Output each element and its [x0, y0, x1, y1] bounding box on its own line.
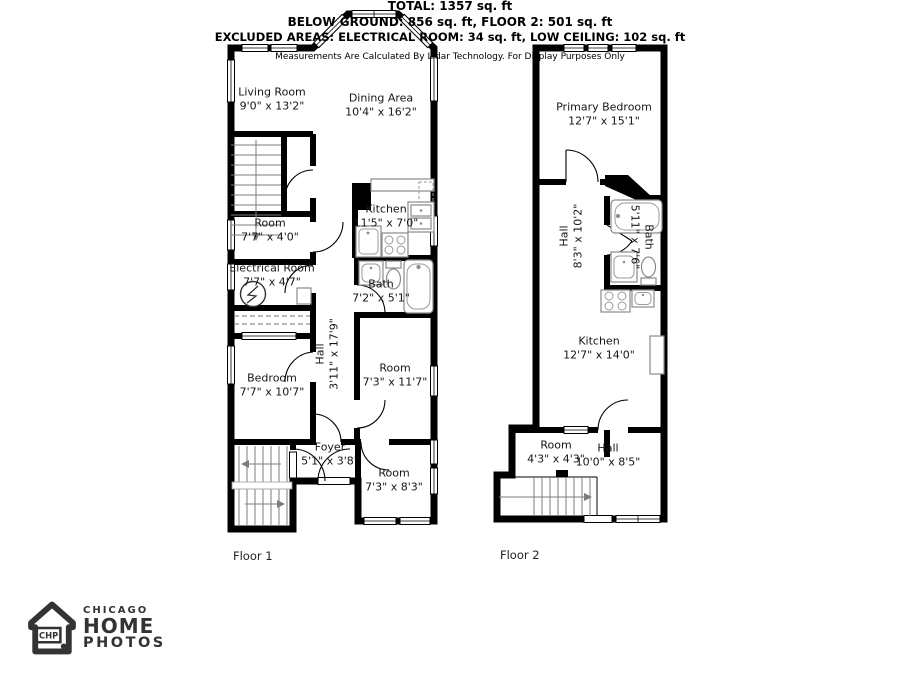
- total-area: TOTAL: 1357 sq. ft: [0, 0, 900, 12]
- wall-stub: [556, 470, 568, 477]
- window: [564, 427, 588, 434]
- room-label-kitchen-1: Kitchen11'5" x 7'0": [354, 203, 419, 232]
- floor1-tag: Floor 1: [233, 549, 273, 563]
- room-label-hall-3: Hall10'0" x 8'5": [576, 442, 641, 471]
- stove-icon: [382, 233, 408, 257]
- room-label-electrical-room: Electrical Room7'7" x 4'7": [229, 262, 314, 291]
- window: [228, 60, 235, 102]
- window: [431, 468, 438, 494]
- entry-opening: [318, 478, 350, 485]
- window: [228, 346, 235, 384]
- room-label-bedroom: Bedroom7'7" x 10'7": [240, 372, 305, 401]
- room-label-primary-bedroom: Primary Bedroom12'7" x 15'1": [556, 101, 652, 130]
- floorplan-drawing: [0, 0, 900, 675]
- area-summary: TOTAL: 1357 sq. ft BELOW GROUND: 856 sq.…: [0, 0, 900, 62]
- home-icon: CHP: [26, 599, 78, 657]
- window: [431, 440, 438, 464]
- entry-opening: [584, 516, 612, 523]
- stove-icon: [601, 290, 630, 312]
- logo-line-3: PHOTOS: [83, 636, 166, 652]
- area-breakdown: BELOW GROUND: 856 sq. ft, FLOOR 2: 501 s…: [0, 16, 900, 28]
- logo-text: CHICAGO HOME PHOTOS: [83, 605, 166, 652]
- room-label-dining-area: Dining Area10'4" x 16'2": [345, 92, 417, 121]
- room-label-room-a: Room7'7" x 4'0": [241, 217, 299, 246]
- window: [242, 333, 296, 340]
- panel-box: [297, 288, 311, 304]
- window: [431, 366, 438, 396]
- room-label-foyer: Foyer5'1" x 3'8": [301, 441, 359, 470]
- counter: [650, 336, 664, 374]
- window: [431, 57, 438, 101]
- kitchen-sink-icon: [632, 290, 654, 307]
- floorplan-page: Living Room9'0" x 13'2" Dining Area10'4"…: [0, 0, 900, 675]
- room-label-living-room: Living Room9'0" x 13'2": [238, 86, 306, 115]
- counter: [371, 179, 434, 191]
- window: [616, 516, 660, 523]
- logo-badge: CHP: [39, 630, 58, 640]
- room-label-bath-1: Bath7'2" x 5'1": [352, 278, 410, 307]
- floor2-tag: Floor 2: [500, 548, 540, 562]
- room-label-room-b: Room7'3" x 11'7": [363, 362, 428, 391]
- logo-line-2: HOME: [83, 616, 166, 636]
- room-label-hall-2: Hall8'3" x 10'2": [558, 204, 587, 269]
- window: [364, 518, 396, 525]
- room-label-bath-2: Bath5'11" x 7'6": [627, 205, 656, 270]
- disclaimer: Measurements Are Calculated By Lidar Tec…: [0, 53, 900, 62]
- excluded-areas: EXCLUDED AREAS: ELECTRICAL ROOM: 34 sq. …: [0, 32, 900, 44]
- opening: [290, 452, 297, 478]
- brand-logo: CHP CHICAGO HOME PHOTOS: [26, 599, 166, 657]
- window: [400, 518, 430, 525]
- room-label-room-c: Room7'3" x 8'3": [365, 467, 423, 496]
- room-label-kitchen-2: Kitchen12'7" x 14'0": [563, 335, 635, 364]
- room-label-hall-1: Hall3'11" x 17'9": [314, 318, 343, 390]
